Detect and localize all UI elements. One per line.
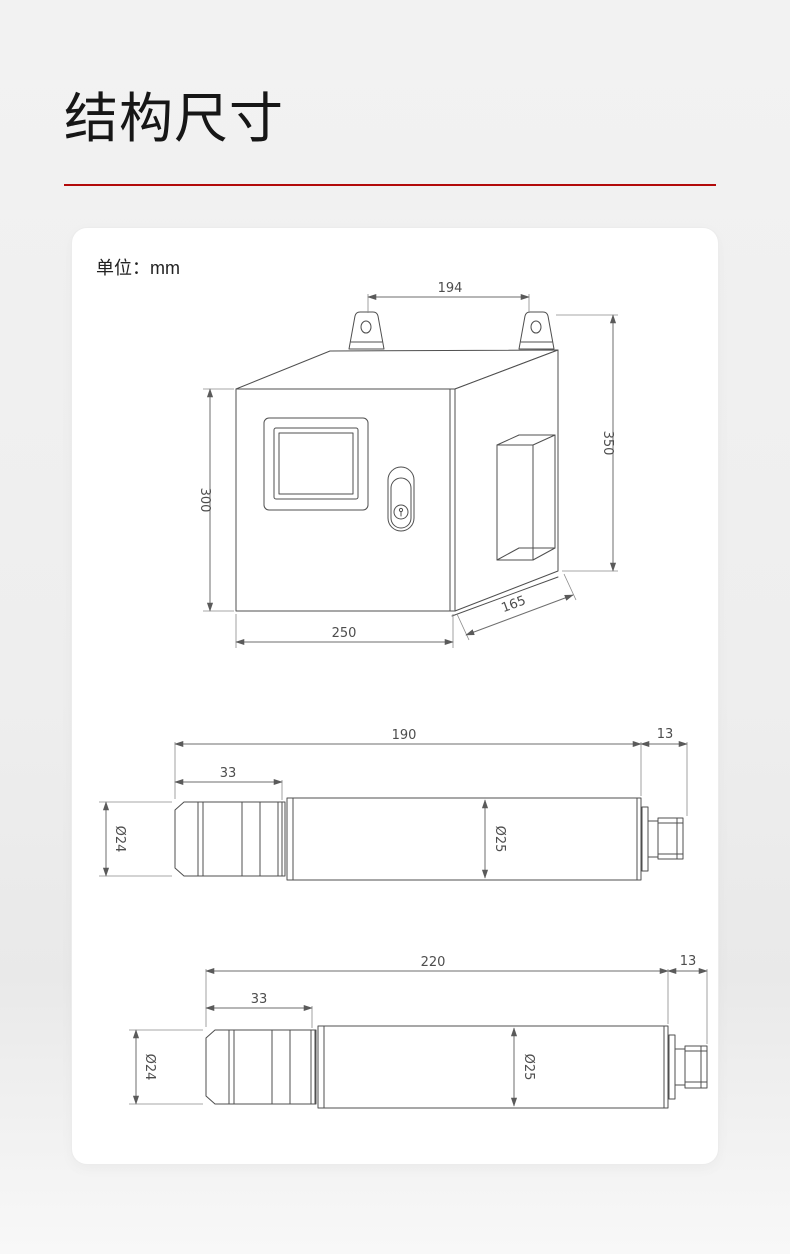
- dimension-probe220-head-diameter: Ø24: [129, 1030, 203, 1104]
- dimension-cabinet-right-height: 350: [556, 315, 618, 571]
- dim-label-cabinet-350: 350: [600, 431, 615, 456]
- dimension-cabinet-top-width: 194: [368, 281, 529, 313]
- dimension-probe220-length: 220: [206, 955, 668, 1027]
- probe-190-connector: [642, 807, 683, 871]
- dim-label-probe220-13: 13: [680, 954, 697, 969]
- dim-label-probe190-d24: Ø24: [112, 826, 127, 853]
- dim-label-probe190-13: 13: [657, 727, 674, 742]
- dimension-probe190-connector: 13: [641, 727, 687, 816]
- mounting-lug-right: [519, 312, 554, 349]
- dimension-cabinet-bottom-width: 250: [236, 614, 453, 648]
- dim-label-probe220-d25: Ø25: [521, 1054, 536, 1081]
- dim-label-probe220-220: 220: [421, 955, 446, 970]
- dim-label-probe190-d25: Ø25: [492, 826, 507, 853]
- dimension-probe190-head-diameter: Ø24: [99, 802, 172, 876]
- dim-label-probe220-33: 33: [251, 992, 268, 1007]
- dim-label-probe220-d24: Ø24: [142, 1054, 157, 1081]
- dimension-probe190-length: 190: [175, 728, 641, 799]
- probe-190-body: [175, 798, 641, 880]
- page-background: { "page": { "title": "结构尺寸", "unit_label…: [0, 0, 790, 1254]
- technical-drawings: 194 300 350 250 165: [0, 0, 790, 1254]
- dim-label-cabinet-300: 300: [197, 488, 212, 513]
- mounting-lug-left: [349, 312, 384, 349]
- dimension-probe190-head: 33: [175, 766, 282, 800]
- dim-label-cabinet-194: 194: [438, 281, 463, 296]
- probe-220-connector: [669, 1035, 707, 1099]
- dim-label-probe190-190: 190: [392, 728, 417, 743]
- probe-190-drawing: 190 13 33 Ø24 Ø25: [99, 727, 687, 880]
- dim-label-cabinet-250: 250: [332, 626, 357, 641]
- dimension-probe220-connector: 13: [668, 954, 707, 1044]
- dimension-cabinet-left-height: 300: [197, 389, 234, 611]
- probe-220-drawing: 220 13 33 Ø24 Ø25: [129, 954, 707, 1108]
- dimension-probe220-head: 33: [206, 992, 312, 1028]
- probe-220-body: [206, 1026, 668, 1108]
- cabinet-body: [236, 350, 558, 616]
- dim-label-probe190-33: 33: [220, 766, 237, 781]
- cabinet-drawing: 194 300 350 250 165: [197, 281, 618, 648]
